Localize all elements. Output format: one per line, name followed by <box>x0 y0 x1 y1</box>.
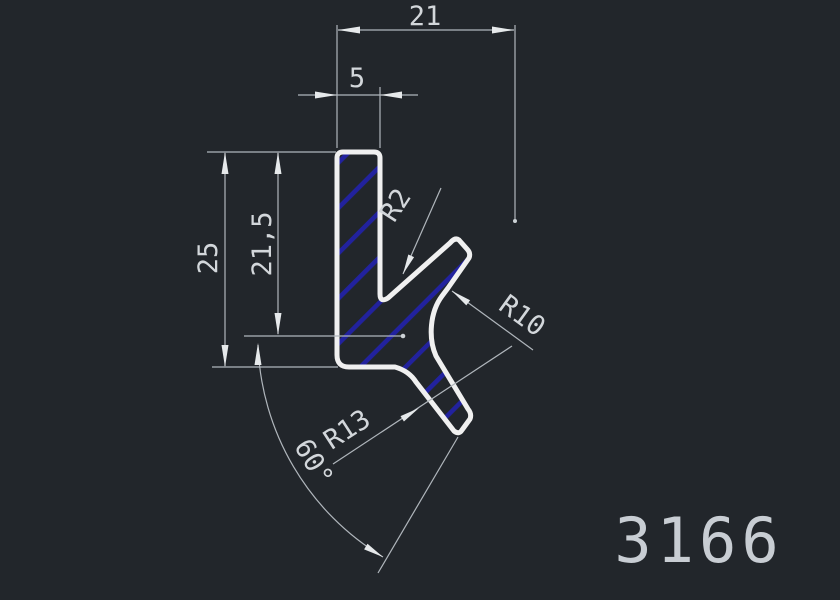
defpoint-dot <box>513 219 517 223</box>
arrowhead-icon <box>364 544 383 557</box>
arrowhead-icon <box>222 345 229 367</box>
cad-drawing: 21 5 25 21,5 <box>0 0 840 600</box>
dim-r10-label: R10 <box>493 289 551 343</box>
cad-viewport: 21 5 25 21,5 <box>0 0 840 600</box>
dim-wall-width-label: 5 <box>349 63 365 94</box>
dim-overall-height-label: 25 <box>193 242 224 275</box>
dim-radius-r10: R10 <box>452 289 551 350</box>
dim-inner-height-label: 21,5 <box>247 211 278 276</box>
arrowhead-icon <box>380 92 402 99</box>
arrowhead-icon <box>315 92 337 99</box>
arrowhead-icon <box>222 152 229 174</box>
defpoint-dot <box>401 334 406 339</box>
arrowhead-icon <box>338 27 360 34</box>
arrowhead-icon <box>492 27 514 34</box>
arrowhead-icon <box>275 313 282 335</box>
arrowhead-icon <box>403 255 414 275</box>
arrowhead-icon <box>452 291 470 305</box>
arrowhead-icon <box>255 343 262 365</box>
dim-top-width-label: 21 <box>409 1 442 32</box>
dim-wall-width: 5 <box>298 63 418 148</box>
arrowhead-icon <box>401 408 420 422</box>
part-number: 3166 <box>614 504 783 577</box>
angle-ray <box>378 437 458 573</box>
arrowhead-icon <box>275 152 282 174</box>
dim-r13-label: R13 <box>318 404 376 457</box>
